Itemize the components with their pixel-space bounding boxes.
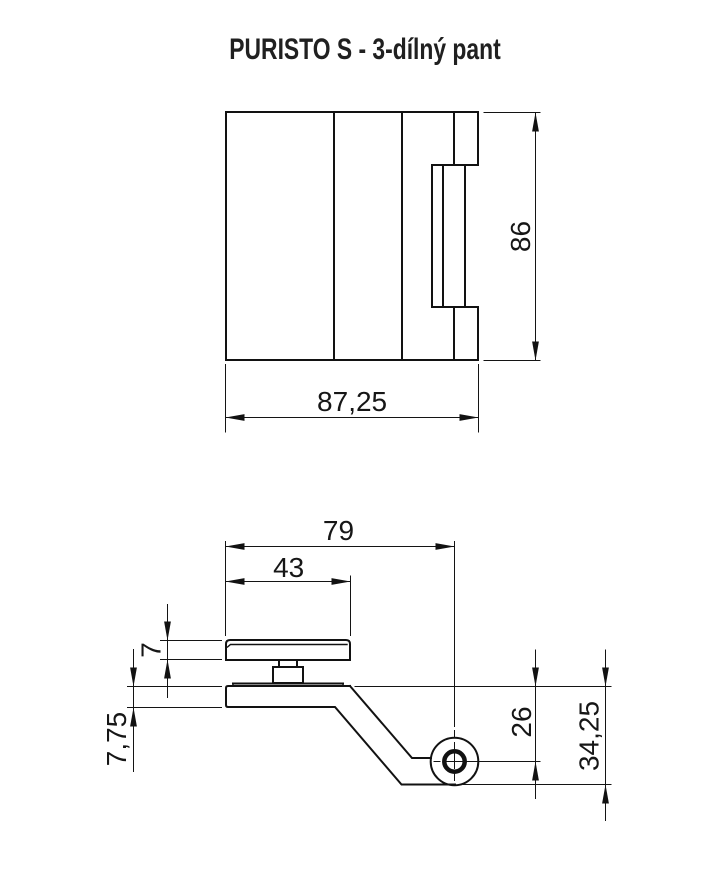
- svg-text:87,25: 87,25: [317, 386, 387, 417]
- svg-text:79: 79: [323, 515, 354, 546]
- svg-text:26: 26: [506, 706, 537, 737]
- svg-text:43: 43: [273, 552, 304, 583]
- svg-text:86: 86: [505, 221, 536, 252]
- svg-text:34,25: 34,25: [574, 701, 605, 771]
- svg-text:7: 7: [136, 642, 167, 658]
- svg-text:7,75: 7,75: [101, 712, 132, 767]
